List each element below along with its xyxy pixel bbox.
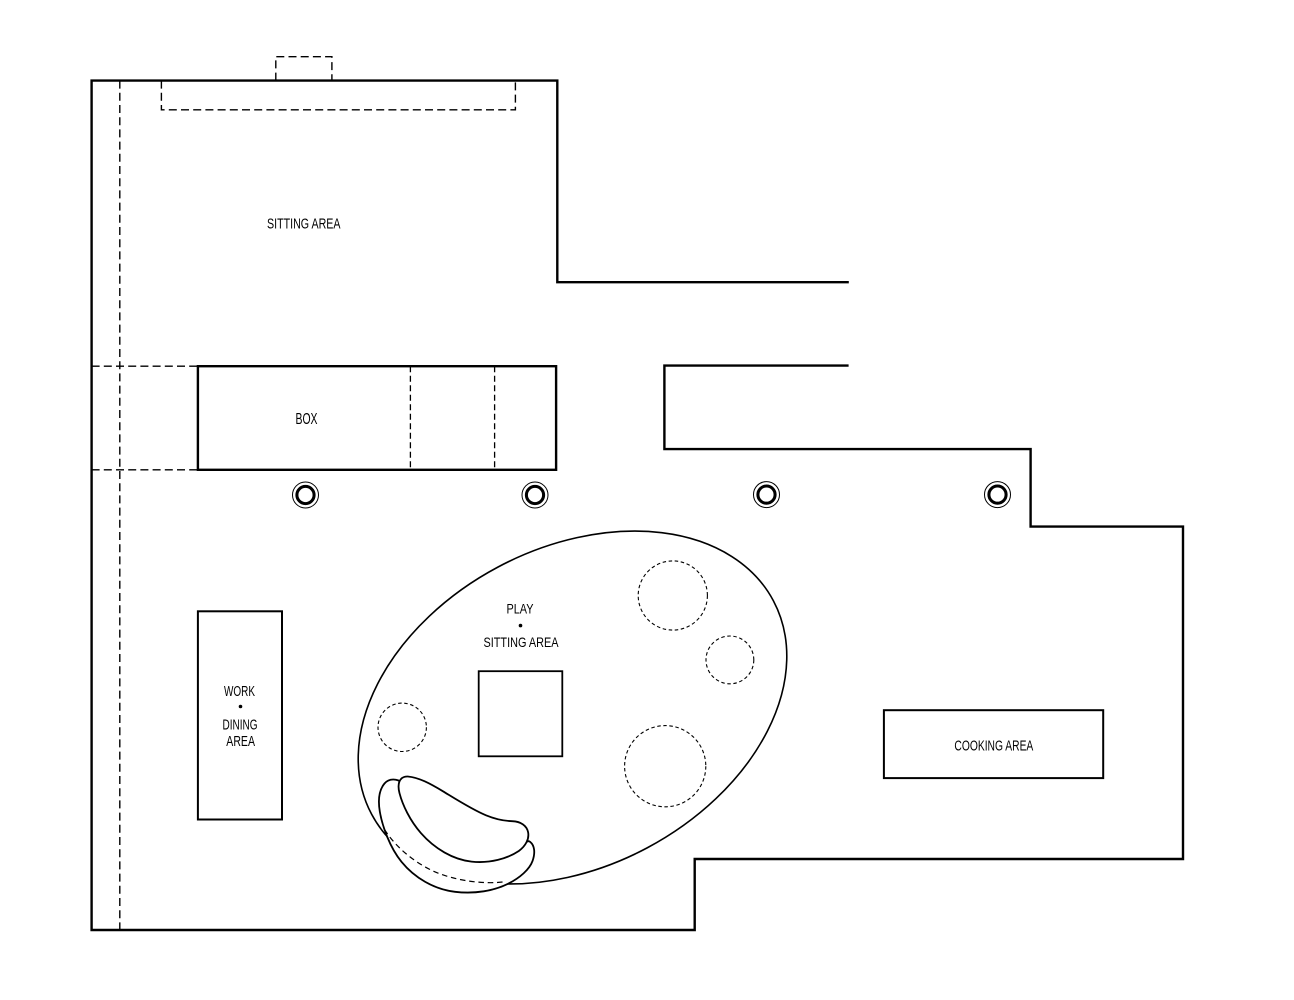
svg-text:AREA: AREA: [226, 734, 255, 750]
svg-text:DINING: DINING: [223, 717, 258, 733]
svg-text:PLAY: PLAY: [507, 601, 535, 617]
svg-text:SITTING AREA: SITTING AREA: [267, 216, 341, 233]
svg-text:WORK: WORK: [224, 684, 255, 700]
svg-text:COOKING AREA: COOKING AREA: [954, 737, 1033, 754]
svg-text:SITTING AREA: SITTING AREA: [484, 634, 560, 650]
svg-text:BOX: BOX: [296, 411, 318, 428]
